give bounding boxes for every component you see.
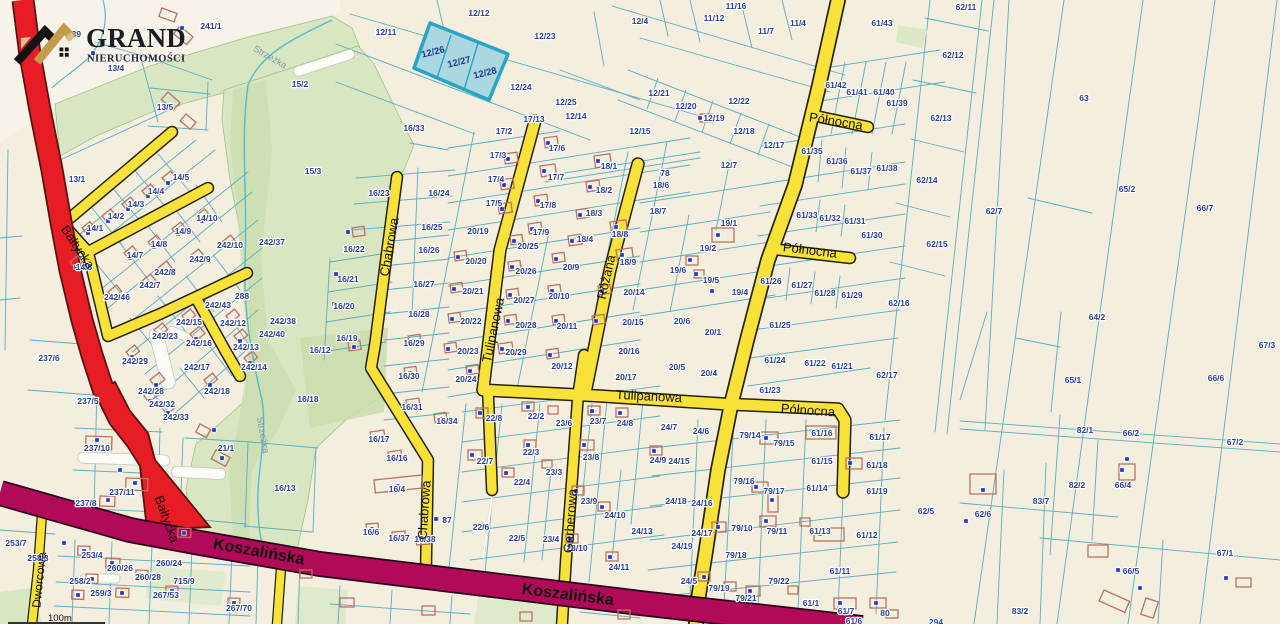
svg-text:61/43: 61/43 bbox=[871, 18, 893, 28]
svg-text:20/14: 20/14 bbox=[623, 287, 645, 297]
svg-text:83/2: 83/2 bbox=[1012, 606, 1029, 616]
svg-text:20/9: 20/9 bbox=[563, 262, 580, 272]
svg-text:267/53: 267/53 bbox=[153, 590, 179, 600]
svg-text:242/8: 242/8 bbox=[154, 267, 176, 277]
svg-text:61/39: 61/39 bbox=[886, 98, 908, 108]
svg-text:253/4: 253/4 bbox=[81, 550, 103, 560]
svg-text:15/2: 15/2 bbox=[292, 79, 309, 89]
svg-text:62/17: 62/17 bbox=[876, 370, 898, 380]
svg-text:24/16: 24/16 bbox=[691, 498, 713, 508]
svg-text:20/27: 20/27 bbox=[513, 295, 535, 305]
svg-text:19/2: 19/2 bbox=[700, 243, 717, 253]
svg-text:16/27: 16/27 bbox=[413, 279, 435, 289]
svg-text:83/7: 83/7 bbox=[1033, 496, 1050, 506]
svg-text:17/8: 17/8 bbox=[540, 200, 557, 210]
svg-text:GRAND: GRAND bbox=[86, 23, 186, 53]
svg-text:61/40: 61/40 bbox=[873, 87, 895, 97]
svg-text:61/13: 61/13 bbox=[809, 526, 831, 536]
svg-text:61/17: 61/17 bbox=[869, 432, 891, 442]
svg-text:17/13: 17/13 bbox=[523, 114, 545, 124]
svg-text:242/14: 242/14 bbox=[241, 362, 267, 372]
svg-text:242/33: 242/33 bbox=[163, 412, 189, 422]
svg-text:12/19: 12/19 bbox=[703, 113, 725, 123]
svg-text:61/23: 61/23 bbox=[759, 385, 781, 395]
svg-text:61/15: 61/15 bbox=[811, 456, 833, 466]
svg-text:20/24: 20/24 bbox=[455, 374, 477, 384]
svg-text:16/18: 16/18 bbox=[297, 394, 319, 404]
svg-text:78: 78 bbox=[660, 168, 670, 178]
svg-text:12/11: 12/11 bbox=[376, 27, 397, 37]
svg-text:242/28: 242/28 bbox=[138, 386, 164, 396]
svg-text:18/8: 18/8 bbox=[612, 229, 629, 239]
svg-text:16/17: 16/17 bbox=[368, 434, 390, 444]
svg-text:12/23: 12/23 bbox=[534, 31, 556, 41]
svg-text:18/6: 18/6 bbox=[653, 180, 670, 190]
svg-text:259/3: 259/3 bbox=[90, 588, 112, 598]
svg-text:24/17: 24/17 bbox=[691, 528, 713, 538]
svg-text:24/15: 24/15 bbox=[668, 456, 690, 466]
svg-text:12/14: 12/14 bbox=[565, 111, 587, 121]
svg-text:14/2: 14/2 bbox=[108, 211, 125, 221]
svg-text:61/24: 61/24 bbox=[764, 355, 786, 365]
svg-text:16/25: 16/25 bbox=[421, 222, 443, 232]
svg-text:22/5: 22/5 bbox=[509, 533, 526, 543]
svg-text:14/8: 14/8 bbox=[151, 239, 168, 249]
svg-text:258/2: 258/2 bbox=[69, 576, 91, 586]
svg-text:242/46: 242/46 bbox=[104, 292, 130, 302]
svg-text:12/4: 12/4 bbox=[632, 16, 649, 26]
svg-text:61/38: 61/38 bbox=[876, 163, 898, 173]
svg-text:12/20: 12/20 bbox=[675, 101, 697, 111]
svg-text:65/1: 65/1 bbox=[1065, 375, 1082, 385]
svg-text:19/5: 19/5 bbox=[703, 275, 720, 285]
svg-text:11/7: 11/7 bbox=[758, 26, 774, 36]
svg-text:23/7: 23/7 bbox=[590, 416, 607, 426]
svg-text:24/19: 24/19 bbox=[671, 541, 693, 551]
svg-text:61/29: 61/29 bbox=[841, 290, 863, 300]
svg-text:24/7: 24/7 bbox=[661, 422, 678, 432]
svg-text:82/1: 82/1 bbox=[1077, 425, 1094, 435]
svg-text:20/19: 20/19 bbox=[467, 226, 489, 236]
svg-text:12/15: 12/15 bbox=[629, 126, 651, 136]
svg-text:62/7: 62/7 bbox=[986, 206, 1003, 216]
svg-text:61/33: 61/33 bbox=[796, 210, 818, 220]
svg-text:66/7: 66/7 bbox=[1197, 203, 1214, 213]
svg-text:16/22: 16/22 bbox=[343, 244, 365, 254]
svg-text:22/7: 22/7 bbox=[477, 456, 494, 466]
svg-text:19/1: 19/1 bbox=[721, 218, 738, 228]
svg-text:18/3: 18/3 bbox=[586, 208, 603, 218]
svg-text:242/40: 242/40 bbox=[259, 329, 285, 339]
svg-text:13/5: 13/5 bbox=[157, 102, 174, 112]
svg-text:16/24: 16/24 bbox=[428, 188, 450, 198]
svg-text:16/23: 16/23 bbox=[368, 188, 390, 198]
svg-text:16/31: 16/31 bbox=[401, 402, 423, 412]
svg-text:61/19: 61/19 bbox=[866, 486, 888, 496]
svg-text:79/15: 79/15 bbox=[773, 438, 795, 448]
svg-text:66/5: 66/5 bbox=[1123, 566, 1140, 576]
svg-text:62/6: 62/6 bbox=[975, 509, 992, 519]
svg-text:20/15: 20/15 bbox=[622, 317, 644, 327]
svg-text:79/17: 79/17 bbox=[763, 486, 785, 496]
svg-text:79/18: 79/18 bbox=[725, 550, 747, 560]
svg-text:61/27: 61/27 bbox=[791, 280, 813, 290]
svg-text:242/7: 242/7 bbox=[139, 280, 161, 290]
svg-text:61/21: 61/21 bbox=[831, 361, 853, 371]
svg-text:17/9: 17/9 bbox=[533, 227, 550, 237]
svg-text:16/13: 16/13 bbox=[274, 483, 296, 493]
svg-text:23/4: 23/4 bbox=[543, 534, 560, 544]
svg-text:23/6: 23/6 bbox=[556, 418, 573, 428]
svg-text:20/29: 20/29 bbox=[505, 347, 527, 357]
svg-text:20/21: 20/21 bbox=[462, 286, 484, 296]
svg-text:24/11: 24/11 bbox=[609, 562, 630, 572]
svg-text:242/43: 242/43 bbox=[205, 300, 231, 310]
svg-text:23/8: 23/8 bbox=[583, 452, 600, 462]
svg-text:260/24: 260/24 bbox=[156, 558, 182, 568]
svg-text:62/16: 62/16 bbox=[888, 298, 910, 308]
svg-text:79/22: 79/22 bbox=[768, 576, 790, 586]
svg-text:17/6: 17/6 bbox=[549, 143, 566, 153]
svg-text:260/28: 260/28 bbox=[135, 572, 161, 582]
svg-text:22/6: 22/6 bbox=[473, 522, 490, 532]
svg-text:16/26: 16/26 bbox=[418, 245, 440, 255]
svg-text:61/25: 61/25 bbox=[769, 320, 791, 330]
svg-text:17/5: 17/5 bbox=[486, 198, 503, 208]
svg-text:12/24: 12/24 bbox=[510, 82, 532, 92]
svg-text:66/2: 66/2 bbox=[1123, 428, 1140, 438]
svg-text:242/17: 242/17 bbox=[184, 362, 210, 372]
svg-text:61/6: 61/6 bbox=[846, 616, 863, 624]
svg-text:16/28: 16/28 bbox=[408, 309, 430, 319]
svg-text:80: 80 bbox=[880, 608, 890, 618]
svg-text:17/4: 17/4 bbox=[488, 174, 505, 184]
svg-text:87: 87 bbox=[442, 515, 452, 525]
svg-text:242/16: 242/16 bbox=[186, 338, 212, 348]
svg-text:61/22: 61/22 bbox=[804, 358, 826, 368]
svg-text:18/4: 18/4 bbox=[577, 234, 594, 244]
svg-text:61/14: 61/14 bbox=[806, 483, 828, 493]
svg-text:63: 63 bbox=[1079, 93, 1089, 103]
svg-text:11/12: 11/12 bbox=[704, 13, 725, 23]
svg-text:14/5: 14/5 bbox=[173, 172, 190, 182]
svg-text:13/4: 13/4 bbox=[108, 63, 125, 73]
svg-text:61/30: 61/30 bbox=[861, 230, 883, 240]
svg-text:79/19: 79/19 bbox=[708, 583, 730, 593]
svg-text:62/14: 62/14 bbox=[916, 175, 938, 185]
svg-text:24/13: 24/13 bbox=[631, 526, 653, 536]
svg-text:12/18: 12/18 bbox=[733, 126, 755, 136]
svg-text:62/15: 62/15 bbox=[926, 239, 948, 249]
svg-text:16/34: 16/34 bbox=[436, 416, 458, 426]
svg-text:20/11: 20/11 bbox=[557, 321, 578, 331]
svg-text:67/1: 67/1 bbox=[1217, 548, 1234, 558]
svg-text:17/3: 17/3 bbox=[490, 150, 507, 160]
svg-text:64/2: 64/2 bbox=[1089, 312, 1106, 322]
svg-text:14/1: 14/1 bbox=[87, 223, 104, 233]
svg-text:61/18: 61/18 bbox=[866, 460, 888, 470]
svg-text:22/8: 22/8 bbox=[486, 413, 503, 423]
svg-text:16/6: 16/6 bbox=[363, 527, 380, 537]
svg-text:61/12: 61/12 bbox=[856, 530, 878, 540]
svg-text:16/19: 16/19 bbox=[336, 333, 358, 343]
svg-text:14/4: 14/4 bbox=[148, 186, 165, 196]
svg-text:288: 288 bbox=[235, 291, 249, 301]
svg-text:20/4: 20/4 bbox=[701, 368, 718, 378]
svg-text:20/6: 20/6 bbox=[674, 316, 691, 326]
svg-text:24/9: 24/9 bbox=[650, 455, 667, 465]
svg-text:14/9: 14/9 bbox=[175, 226, 192, 236]
svg-text:13/1: 13/1 bbox=[69, 174, 86, 184]
svg-text:16/4: 16/4 bbox=[389, 484, 406, 494]
svg-text:16/30: 16/30 bbox=[398, 371, 420, 381]
svg-text:79/11: 79/11 bbox=[767, 526, 788, 536]
svg-text:16/37: 16/37 bbox=[388, 533, 410, 543]
svg-text:79/21: 79/21 bbox=[735, 593, 757, 603]
svg-text:18/2: 18/2 bbox=[596, 185, 613, 195]
svg-text:20/16: 20/16 bbox=[618, 346, 640, 356]
svg-text:20/12: 20/12 bbox=[551, 361, 573, 371]
svg-text:61/41: 61/41 bbox=[846, 87, 868, 97]
svg-text:237/10: 237/10 bbox=[84, 443, 110, 453]
svg-text:242/38: 242/38 bbox=[270, 316, 296, 326]
svg-text:20/17: 20/17 bbox=[615, 372, 637, 382]
svg-text:67/2: 67/2 bbox=[1227, 437, 1244, 447]
svg-text:242/13: 242/13 bbox=[233, 342, 259, 352]
svg-text:242/29: 242/29 bbox=[122, 356, 148, 366]
svg-text:62/5: 62/5 bbox=[918, 506, 935, 516]
svg-text:62/13: 62/13 bbox=[930, 113, 952, 123]
svg-text:16/33: 16/33 bbox=[403, 123, 425, 133]
svg-text:242/23: 242/23 bbox=[152, 331, 178, 341]
svg-text:22/3: 22/3 bbox=[523, 447, 540, 457]
svg-text:24/6: 24/6 bbox=[693, 426, 710, 436]
svg-text:61/16: 61/16 bbox=[811, 428, 833, 438]
svg-text:61/11: 61/11 bbox=[830, 566, 851, 576]
svg-text:20/25: 20/25 bbox=[517, 241, 539, 251]
svg-text:61/42: 61/42 bbox=[825, 80, 847, 90]
svg-text:17/7: 17/7 bbox=[548, 172, 565, 182]
svg-text:17/2: 17/2 bbox=[496, 126, 513, 136]
svg-text:24/8: 24/8 bbox=[617, 418, 634, 428]
svg-text:241/1: 241/1 bbox=[200, 21, 222, 31]
svg-text:18/7: 18/7 bbox=[650, 206, 667, 216]
svg-text:79/16: 79/16 bbox=[733, 476, 755, 486]
svg-text:19/6: 19/6 bbox=[670, 265, 687, 275]
svg-text:294: 294 bbox=[929, 617, 943, 624]
svg-text:12/7: 12/7 bbox=[721, 160, 738, 170]
svg-text:20/5: 20/5 bbox=[669, 362, 686, 372]
svg-text:20/28: 20/28 bbox=[515, 320, 537, 330]
svg-text:16/20: 16/20 bbox=[333, 301, 355, 311]
svg-text:12/17: 12/17 bbox=[763, 140, 785, 150]
svg-text:14/3: 14/3 bbox=[128, 199, 145, 209]
svg-text:237/11: 237/11 bbox=[109, 487, 135, 497]
svg-text:11/16: 11/16 bbox=[726, 1, 747, 11]
svg-text:20/20: 20/20 bbox=[465, 256, 487, 266]
svg-text:20/22: 20/22 bbox=[460, 316, 482, 326]
svg-text:62/11: 62/11 bbox=[956, 2, 977, 12]
svg-text:24/10: 24/10 bbox=[604, 510, 626, 520]
svg-text:23/3: 23/3 bbox=[546, 467, 563, 477]
svg-text:12/21: 12/21 bbox=[648, 88, 670, 98]
svg-text:67/3: 67/3 bbox=[1259, 340, 1276, 350]
svg-text:61/37: 61/37 bbox=[850, 166, 872, 176]
svg-text:15/3: 15/3 bbox=[305, 166, 322, 176]
svg-text:18/9: 18/9 bbox=[620, 257, 637, 267]
svg-text:242/10: 242/10 bbox=[217, 240, 243, 250]
svg-text:11/4: 11/4 bbox=[790, 18, 806, 28]
svg-text:14/7: 14/7 bbox=[127, 250, 144, 260]
svg-text:14/10: 14/10 bbox=[196, 213, 218, 223]
svg-text:61/1: 61/1 bbox=[803, 598, 820, 608]
svg-text:79/14: 79/14 bbox=[739, 430, 761, 440]
svg-text:12/25: 12/25 bbox=[555, 97, 577, 107]
svg-text:237/6: 237/6 bbox=[38, 353, 60, 363]
svg-text:16/29: 16/29 bbox=[403, 338, 425, 348]
svg-text:16/21: 16/21 bbox=[337, 274, 359, 284]
svg-text:12/12: 12/12 bbox=[468, 8, 490, 18]
svg-text:24/5: 24/5 bbox=[681, 576, 698, 586]
svg-text:242/18: 242/18 bbox=[204, 386, 230, 396]
svg-text:20/26: 20/26 bbox=[515, 266, 537, 276]
svg-text:16/16: 16/16 bbox=[386, 453, 408, 463]
svg-text:242/12: 242/12 bbox=[220, 318, 246, 328]
svg-text:NIERUCHOMOŚCI: NIERUCHOMOŚCI bbox=[87, 53, 186, 65]
svg-text:253/7: 253/7 bbox=[5, 538, 27, 548]
svg-text:61/31: 61/31 bbox=[844, 216, 866, 226]
svg-text:715/9: 715/9 bbox=[173, 576, 195, 586]
svg-text:61/28: 61/28 bbox=[814, 288, 836, 298]
svg-text:242/37: 242/37 bbox=[259, 237, 285, 247]
svg-text:242/9: 242/9 bbox=[189, 254, 211, 264]
svg-text:242/32: 242/32 bbox=[149, 399, 175, 409]
svg-text:19/4: 19/4 bbox=[732, 287, 749, 297]
svg-text:61/26: 61/26 bbox=[760, 276, 782, 286]
svg-text:237/8: 237/8 bbox=[75, 498, 97, 508]
svg-text:267/70: 267/70 bbox=[226, 603, 252, 613]
svg-text:61/7: 61/7 bbox=[838, 606, 855, 616]
svg-text:16/12: 16/12 bbox=[309, 345, 331, 355]
svg-text:62/12: 62/12 bbox=[942, 50, 964, 60]
svg-text:79/10: 79/10 bbox=[731, 523, 753, 533]
svg-text:23/9: 23/9 bbox=[581, 496, 598, 506]
svg-text:24/18: 24/18 bbox=[665, 496, 687, 506]
svg-text:18/1: 18/1 bbox=[601, 161, 618, 171]
svg-text:61/35: 61/35 bbox=[801, 146, 823, 156]
svg-text:22/2: 22/2 bbox=[528, 411, 545, 421]
svg-text:237/5: 237/5 bbox=[77, 396, 99, 406]
svg-text:82/2: 82/2 bbox=[1069, 480, 1086, 490]
svg-text:66/6: 66/6 bbox=[1208, 373, 1225, 383]
svg-text:61/32: 61/32 bbox=[819, 213, 841, 223]
svg-text:22/4: 22/4 bbox=[514, 477, 531, 487]
svg-text:20/1: 20/1 bbox=[705, 327, 722, 337]
svg-text:20/23: 20/23 bbox=[457, 346, 479, 356]
svg-text:21/1: 21/1 bbox=[218, 443, 235, 453]
svg-text:61/36: 61/36 bbox=[826, 156, 848, 166]
svg-text:242/15: 242/15 bbox=[176, 317, 202, 327]
svg-text:260/26: 260/26 bbox=[107, 563, 133, 573]
svg-text:12/22: 12/22 bbox=[728, 96, 750, 106]
svg-text:65/2: 65/2 bbox=[1119, 184, 1136, 194]
svg-text:20/10: 20/10 bbox=[548, 291, 570, 301]
svg-text:66/4: 66/4 bbox=[1115, 480, 1132, 490]
